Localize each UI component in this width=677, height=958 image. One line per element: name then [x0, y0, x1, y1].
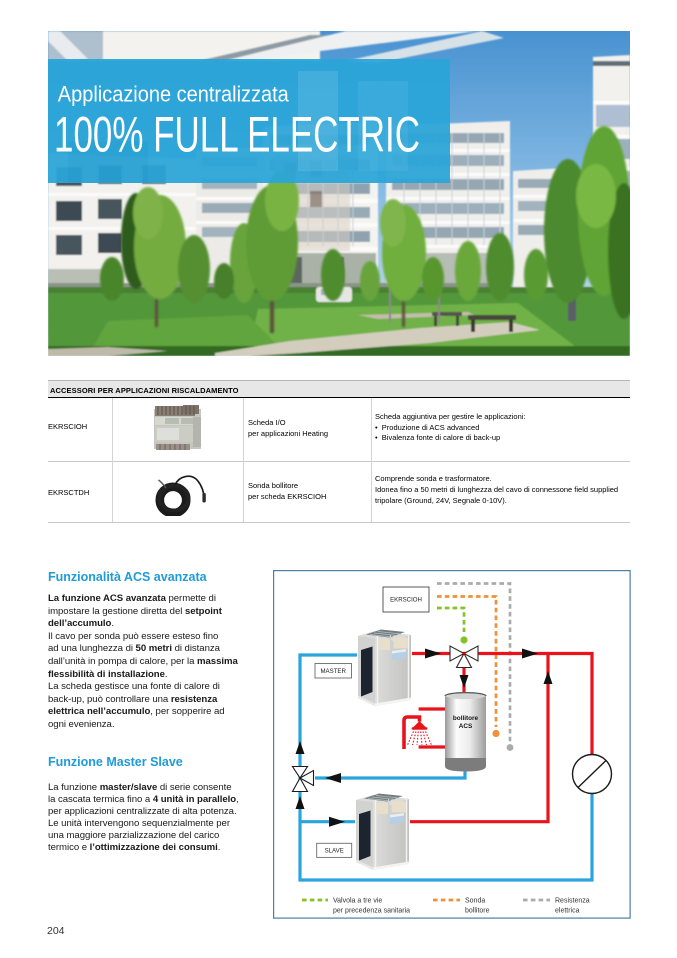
svg-text:SLAVE: SLAVE	[325, 848, 344, 855]
svg-text:Valvola a tre vie: Valvola a tre vie	[333, 898, 382, 905]
svg-text:bollitore: bollitore	[465, 908, 490, 915]
svg-text:ACS: ACS	[459, 723, 473, 730]
svg-text:Applicazione centralizzata: Applicazione centralizzata	[58, 82, 290, 107]
svg-text:per precedenza sanitaria: per precedenza sanitaria	[333, 908, 410, 915]
svg-text:MASTER: MASTER	[320, 668, 346, 675]
svg-text:elettrica: elettrica	[555, 908, 580, 915]
svg-text:Resistenza: Resistenza	[555, 898, 590, 905]
svg-text:Sonda: Sonda	[465, 898, 485, 905]
svg-text:100% FULL ELECTRIC: 100% FULL ELECTRIC	[54, 107, 420, 163]
svg-text:EKRSCIOH: EKRSCIOH	[390, 597, 422, 604]
svg-text:bollitore: bollitore	[453, 715, 479, 722]
